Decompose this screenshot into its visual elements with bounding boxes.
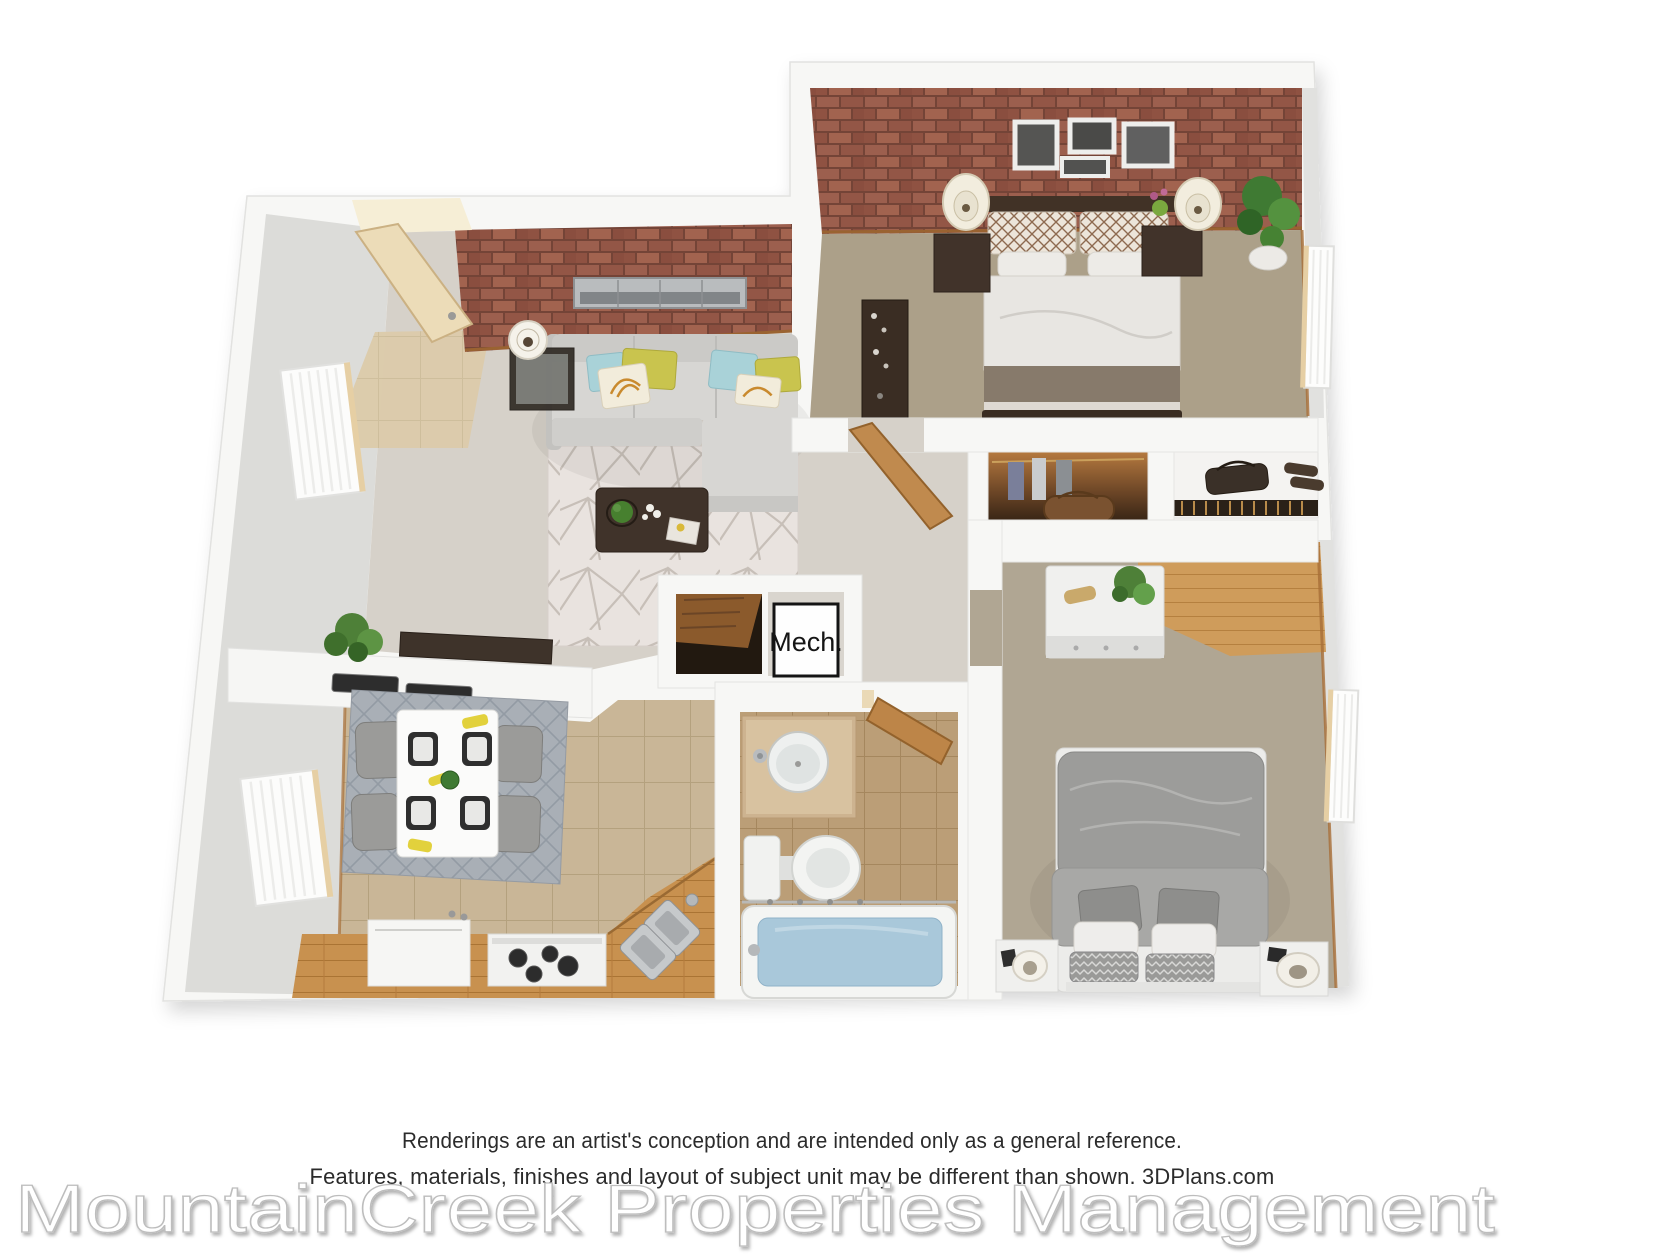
mech-label: Mech. xyxy=(769,627,843,657)
bedroom2-dresser xyxy=(1046,566,1164,658)
floor-plan: Mech. xyxy=(163,62,1358,1001)
master-window xyxy=(1300,246,1334,389)
disclaimer-line-1: Renderings are an artist's conception an… xyxy=(402,1128,1182,1153)
bedroom2-window xyxy=(1324,689,1359,822)
page: Mech. xyxy=(0,0,1680,1260)
vanity-sink xyxy=(742,716,856,818)
lamp-right xyxy=(1175,178,1221,230)
floor-plan-rendering: Mech. xyxy=(0,0,1680,1260)
tub-faucet xyxy=(748,944,760,956)
nightstand-right xyxy=(1142,226,1202,276)
coffee-table xyxy=(596,488,708,552)
mech-closet: Mech. xyxy=(658,575,862,688)
lamp-left xyxy=(943,174,989,230)
centerpiece-plant xyxy=(441,771,459,789)
watermark: MountainCreek Properties Management xyxy=(15,1171,1495,1247)
range xyxy=(488,934,606,986)
dining-table xyxy=(397,710,498,857)
headboard xyxy=(980,196,1176,212)
bedroom2-nightstand-left xyxy=(996,940,1058,992)
bedroom2-door-opening xyxy=(970,590,1002,666)
master-bedroom xyxy=(810,88,1308,428)
picture-frames xyxy=(1015,120,1172,176)
bedroom2-nightstand-right xyxy=(1260,942,1328,996)
kitchen-window xyxy=(240,769,333,906)
bedroom2-bed xyxy=(1030,748,1290,992)
door-handle xyxy=(448,312,456,320)
tall-dresser xyxy=(862,300,908,428)
bathroom xyxy=(715,682,968,1000)
nightstand-left xyxy=(934,234,990,292)
closet-shelf xyxy=(1174,452,1325,518)
toilet xyxy=(744,836,860,900)
wall-art xyxy=(574,278,746,308)
refrigerator xyxy=(368,911,470,987)
footer: Renderings are an artist's conception an… xyxy=(15,1128,1495,1247)
sink-faucet xyxy=(686,894,698,906)
bathtub xyxy=(742,899,956,998)
closet-clothes xyxy=(988,452,1148,526)
